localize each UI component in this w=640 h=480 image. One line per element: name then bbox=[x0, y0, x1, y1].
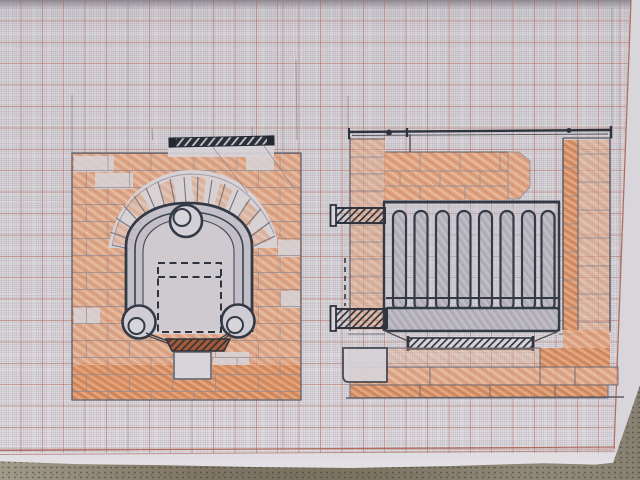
pencil-drawing bbox=[0, 0, 640, 480]
radiator bbox=[383, 202, 560, 331]
radiator-plinth bbox=[385, 308, 559, 331]
lintel-bar bbox=[169, 135, 274, 147]
radiator-section-view bbox=[331, 8, 625, 398]
apex-medallion bbox=[170, 205, 202, 237]
hinge-boss-left bbox=[123, 306, 156, 339]
pipe-stub-lower bbox=[331, 306, 388, 331]
graph-paper-sheet bbox=[0, 0, 640, 480]
base-left-block bbox=[343, 348, 387, 382]
photo-of-drawing bbox=[0, 0, 640, 480]
guide-lines-right bbox=[348, 8, 612, 133]
pipe-stub-upper bbox=[331, 205, 386, 226]
pedestal bbox=[174, 352, 211, 379]
fireplace-front-view bbox=[72, 60, 301, 400]
hinge-boss-right bbox=[222, 305, 255, 338]
